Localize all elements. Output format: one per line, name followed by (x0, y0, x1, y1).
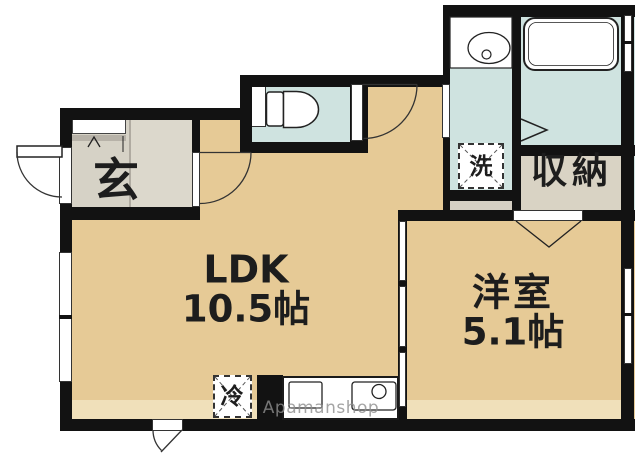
wall-bottom (60, 419, 635, 431)
wall-toilet-bottom (240, 142, 364, 153)
toilet-door (351, 84, 363, 141)
wall-top-entrance (60, 108, 252, 120)
western-room-name: 洋室 (462, 274, 565, 314)
entry-door-swing (17, 146, 62, 197)
washer-label: 洗 (470, 155, 493, 179)
toilet-side-counter (252, 87, 266, 127)
outside-notch (60, 75, 240, 108)
western-room-window-tick (624, 313, 632, 316)
back-door-swing (153, 430, 182, 452)
entry-door-opening (59, 147, 72, 204)
shoe-cabinet (72, 119, 126, 134)
wall-washroom-bathroom (512, 17, 521, 145)
ldk-name: LDK (182, 251, 310, 291)
hall-ldk-door (192, 152, 200, 207)
entrance-hall-floor (130, 120, 200, 208)
ldk-left-window-tick (59, 315, 72, 319)
wall-top-middle (240, 75, 450, 87)
bathroom-window-tick (624, 41, 632, 44)
wall-top-bathroom (443, 5, 635, 17)
ldk-label: LDK 10.5帖 (182, 251, 310, 330)
entrance-label: 玄 (93, 156, 139, 204)
storage-label: 収納 (531, 153, 613, 191)
floor-plan: 玄 LDK 10.5帖 洋室 5.1帖 収納 洗 冷 Apamanshop (0, 0, 640, 458)
storage-door-opening (513, 210, 583, 221)
fridge-label: 冷 (221, 385, 244, 409)
sliding-door-panel-3 (399, 352, 406, 407)
western-room-label: 洋室 5.1帖 (462, 274, 565, 353)
western-floor-band (407, 400, 623, 419)
shoe-cabinet-shadow (72, 135, 126, 141)
toilet-room-floor (252, 87, 362, 142)
wall-hall-door-post (192, 120, 200, 154)
sliding-door-panel-1 (399, 221, 406, 281)
ldk-back-door-opening (152, 419, 183, 431)
wall-entrance-bottom (60, 207, 200, 220)
western-room-size: 5.1帖 (462, 314, 565, 353)
ldk-size: 10.5帖 (182, 291, 310, 330)
western-room-window (624, 268, 632, 364)
sliding-door-panel-2 (399, 286, 406, 347)
watermark: Apamanshop (263, 398, 379, 418)
wall-washroom-bottom (443, 190, 516, 201)
washroom-door (442, 84, 450, 138)
